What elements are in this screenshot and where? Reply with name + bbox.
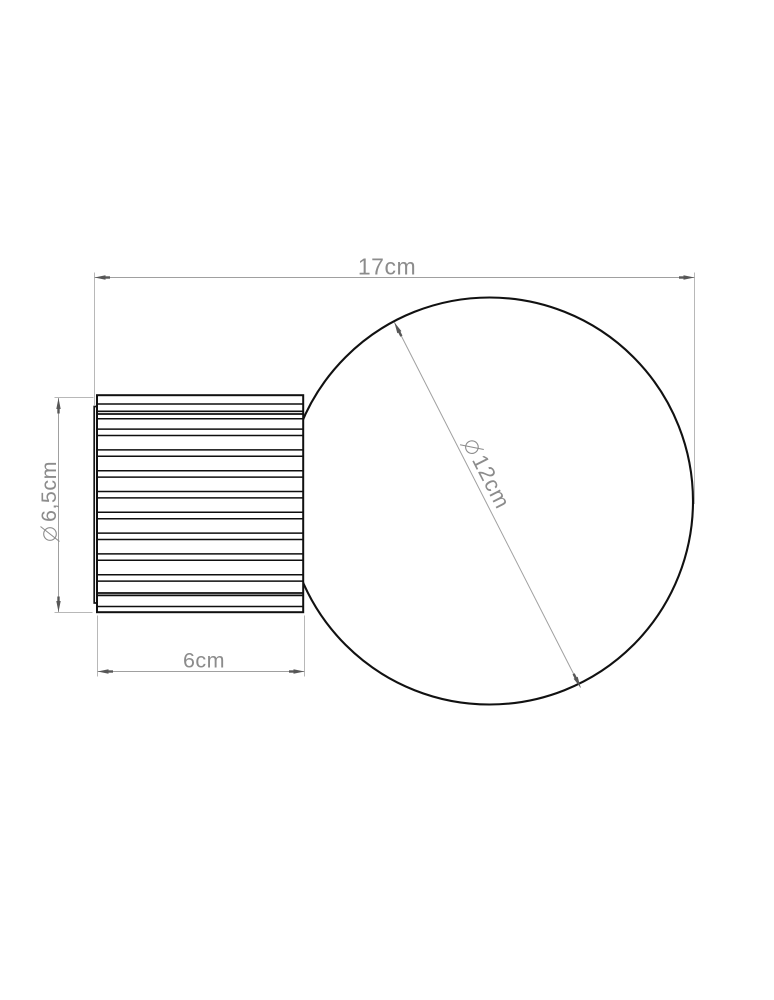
svg-text:6,5cm: 6,5cm bbox=[37, 461, 61, 522]
svg-text:6cm: 6cm bbox=[183, 649, 225, 673]
svg-text:17cm: 17cm bbox=[358, 254, 416, 280]
